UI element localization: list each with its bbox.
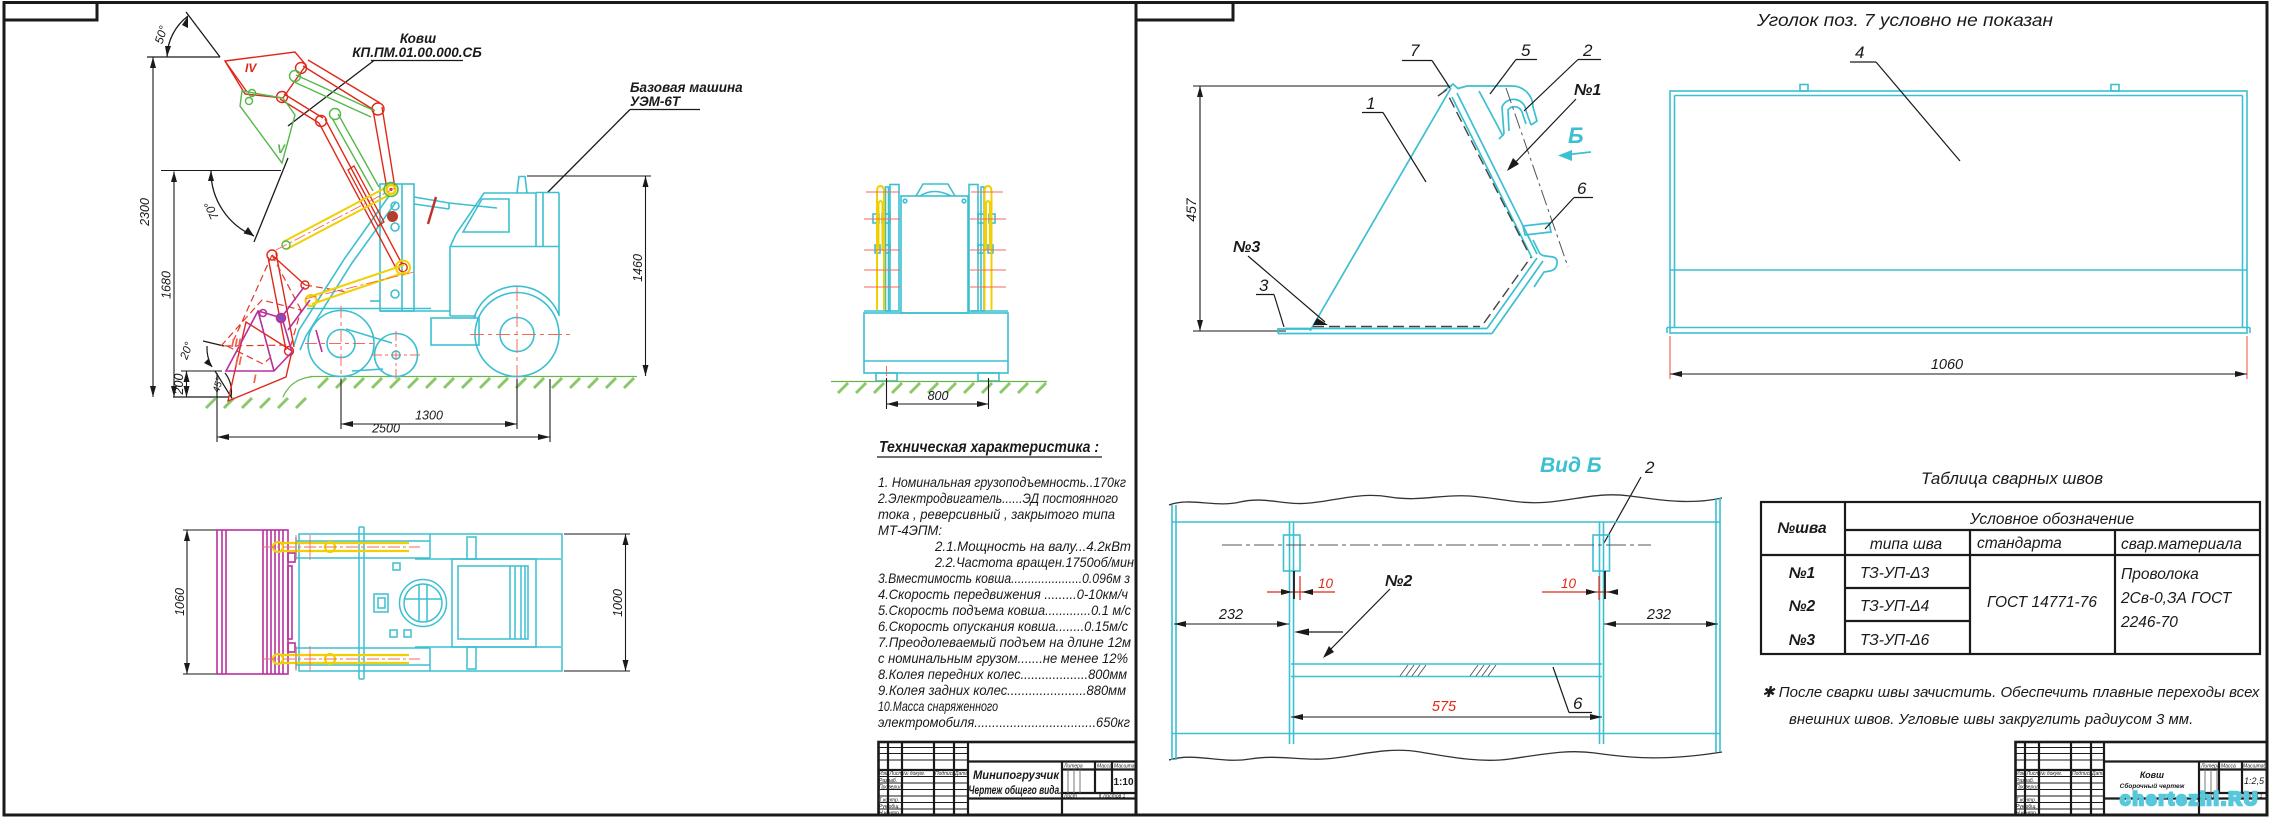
svg-text:2Св-0,ЗА ГОСТ: 2Св-0,ЗА ГОСТ — [2120, 590, 2233, 607]
svg-text:200: 200 — [172, 374, 186, 396]
svg-text:2246-70: 2246-70 — [2120, 614, 2178, 631]
svg-text:4: 4 — [1855, 43, 1864, 62]
svg-text:стандарта: стандарта — [1977, 535, 2062, 552]
svg-text:Лист: Лист — [1063, 794, 1077, 800]
svg-text:с номинальным грузом.......не: с номинальным грузом.......не менее 12% — [878, 651, 1128, 666]
svg-text:1. Номинальная грузоподъемност: 1. Номинальная грузоподъемность..170кг — [878, 475, 1126, 490]
svg-text:ГОСТ 14771-76: ГОСТ 14771-76 — [1987, 594, 2097, 611]
svg-text:232: 232 — [1646, 607, 1671, 623]
svg-text:ТЗ-УП-Δ3: ТЗ-УП-Δ3 — [1860, 565, 1930, 582]
svg-text:1060: 1060 — [173, 588, 187, 616]
svg-text:1: 1 — [1366, 94, 1375, 113]
svg-text:№3: №3 — [1789, 632, 1816, 649]
svg-text:№ докум.: № докум. — [903, 771, 925, 777]
svg-text:Масса: Масса — [2221, 764, 2236, 770]
svg-text:1:2,5: 1:2,5 — [2244, 776, 2265, 786]
svg-text:№шва: №шва — [1777, 520, 1827, 537]
svg-text:Базовая машина: Базовая машина — [630, 80, 743, 95]
svg-text:5.Скорость подъема ковша......: 5.Скорость подъема ковша.............0.1… — [878, 603, 1131, 618]
svg-text:УЭМ-6Т: УЭМ-6Т — [630, 94, 682, 109]
svg-text:Подпись: Подпись — [2072, 771, 2092, 777]
svg-text:Т.контр.: Т.контр. — [2016, 798, 2036, 804]
svg-text:2500: 2500 — [371, 422, 400, 436]
svg-text:Проверил: Проверил — [2016, 785, 2039, 791]
svg-text:✱ После сварки швы зачисти: ✱ После сварки швы зачистить. Обеспечить… — [1762, 684, 2260, 701]
svg-text:Проверил: Проверил — [879, 785, 902, 791]
svg-text:III: III — [231, 336, 242, 350]
svg-text:Листов 1: Листов 1 — [1102, 794, 1126, 800]
svg-text:3.Вместимость ковша...........: 3.Вместимость ковша.....................… — [878, 571, 1130, 586]
svg-text:2: 2 — [1644, 458, 1655, 477]
svg-text:Масштаб: Масштаб — [2243, 764, 2267, 770]
svg-text:1000: 1000 — [611, 589, 625, 617]
svg-text:Подпись: Подпись — [935, 771, 955, 777]
svg-text:5: 5 — [1521, 41, 1531, 60]
svg-text:8.Колея передних колес........: 8.Колея передних колес..................… — [878, 667, 1128, 682]
svg-text:3: 3 — [1259, 276, 1269, 295]
svg-text:КП.ПМ.01.00.000.СБ: КП.ПМ.01.00.000.СБ — [352, 45, 482, 60]
svg-text:№2: №2 — [1789, 598, 1816, 615]
svg-text:Т.контр.: Т.контр. — [879, 798, 899, 804]
svg-text:7: 7 — [1410, 41, 1420, 60]
svg-text:электромобиля.................: электромобиля...........................… — [878, 715, 1130, 730]
svg-text:№2: №2 — [1385, 573, 1412, 590]
svg-text:Изм Лист: Изм Лист — [879, 771, 903, 777]
svg-text:Ковш: Ковш — [400, 31, 436, 46]
svg-text:Н.контр.: Н.контр. — [2016, 811, 2037, 817]
svg-text:тока , реверсивный , закрытого: тока , реверсивный , закрытого типа — [878, 507, 1115, 522]
svg-text:800: 800 — [928, 389, 949, 403]
svg-text:chertezhi.RU: chertezhi.RU — [2120, 788, 2259, 809]
svg-text:Дата: Дата — [2091, 771, 2105, 777]
svg-text:7.Преодолеваемый подъем на дли: 7.Преодолеваемый подъем на длине 12м — [878, 635, 1132, 650]
svg-text:10: 10 — [1561, 576, 1577, 591]
svg-text:ТЗ-УП-Δ4: ТЗ-УП-Δ4 — [1860, 598, 1930, 615]
svg-text:2.1.Мощность на валу...4.2кВт: 2.1.Мощность на валу...4.2кВт — [934, 539, 1131, 554]
svg-text:Разраб.: Разраб. — [879, 778, 897, 784]
svg-text:1:10: 1:10 — [1113, 777, 1133, 788]
svg-text:1680: 1680 — [160, 271, 174, 299]
svg-text:Дата: Дата — [954, 771, 968, 777]
svg-text:МТ-4ЭПМ:: МТ-4ЭПМ: — [878, 523, 942, 538]
svg-text:типа шва: типа шва — [1870, 536, 1943, 553]
svg-text:6.Скорость опускания ковша....: 6.Скорость опускания ковша........0.15м/… — [878, 619, 1128, 634]
svg-text:1460: 1460 — [631, 254, 645, 282]
svg-text:№1: №1 — [1574, 82, 1601, 99]
svg-text:10: 10 — [1318, 576, 1334, 591]
svg-text:№ докум.: № докум. — [2040, 771, 2062, 777]
svg-text:Проволока: Проволока — [2121, 566, 2199, 583]
svg-text:Разраб.: Разраб. — [2016, 778, 2034, 784]
svg-text:Н.контр.: Н.контр. — [879, 811, 900, 817]
svg-text:2.2.Частота вращен.1750об/мин: 2.2.Частота вращен.1750об/мин — [934, 555, 1134, 570]
svg-text:Уголок поз. 7 условно не: Уголок поз. 7 условно не показан — [1756, 10, 2053, 30]
svg-text:4.Скорость передвижения ......: 4.Скорость передвижения .........0-10км/… — [878, 587, 1128, 602]
svg-text:Литера: Литера — [2200, 764, 2220, 770]
svg-text:Литера: Литера — [1063, 764, 1083, 770]
svg-text:10.Масса снаряженного: 10.Масса снаряженного — [878, 699, 998, 714]
svg-text:Рук.общ.: Рук.общ. — [879, 804, 900, 810]
svg-text:Ковш: Ковш — [2140, 770, 2164, 780]
svg-text:6: 6 — [1577, 179, 1587, 198]
svg-text:575: 575 — [1432, 699, 1457, 715]
svg-text:232: 232 — [1218, 607, 1243, 623]
svg-text:№1: №1 — [1789, 565, 1815, 582]
svg-text:Техническая характеристика :: Техническая характеристика : — [879, 439, 1099, 456]
svg-text:Вид Б: Вид Б — [1540, 454, 1602, 477]
svg-text:Изм Лист: Изм Лист — [2016, 771, 2040, 777]
svg-text:1300: 1300 — [415, 409, 443, 423]
svg-text:2: 2 — [1582, 41, 1593, 60]
svg-text:1060: 1060 — [1931, 357, 1963, 373]
svg-text:Чертеж общего вида.: Чертеж общего вида. — [969, 783, 1062, 797]
svg-text:IV: IV — [245, 61, 257, 75]
svg-text:свар.материала: свар.материала — [2121, 536, 2242, 553]
svg-text:ТЗ-УП-Δ6: ТЗ-УП-Δ6 — [1860, 632, 1930, 649]
svg-text:Таблица сварных швов: Таблица сварных швов — [1921, 470, 2103, 488]
svg-text:внешних швов. Угловые швы: внешних швов. Угловые швы закруглить рад… — [1789, 711, 2193, 728]
svg-text:Б: Б — [1568, 123, 1584, 148]
svg-text:№3: №3 — [1233, 239, 1260, 256]
svg-text:V: V — [277, 142, 286, 156]
svg-text:9.Колея задних колес..........: 9.Колея задних колес....................… — [878, 683, 1127, 698]
svg-text:6: 6 — [1573, 694, 1583, 713]
svg-text:Условное обозначение: Условное обозначение — [1969, 511, 2135, 528]
svg-text:457: 457 — [1183, 197, 1199, 222]
svg-text:2.Электродвигатель......ЭД пос: 2.Электродвигатель......ЭД постоянного — [877, 491, 1118, 506]
svg-text:Рук.общ.: Рук.общ. — [2016, 804, 2037, 810]
svg-text:Минипогрузчик: Минипогрузчик — [973, 768, 1060, 782]
svg-text:Масштаб: Масштаб — [1114, 764, 1138, 770]
svg-text:Масса: Масса — [1097, 764, 1112, 770]
svg-text:2300: 2300 — [138, 198, 152, 227]
svg-text:II: II — [235, 354, 242, 368]
